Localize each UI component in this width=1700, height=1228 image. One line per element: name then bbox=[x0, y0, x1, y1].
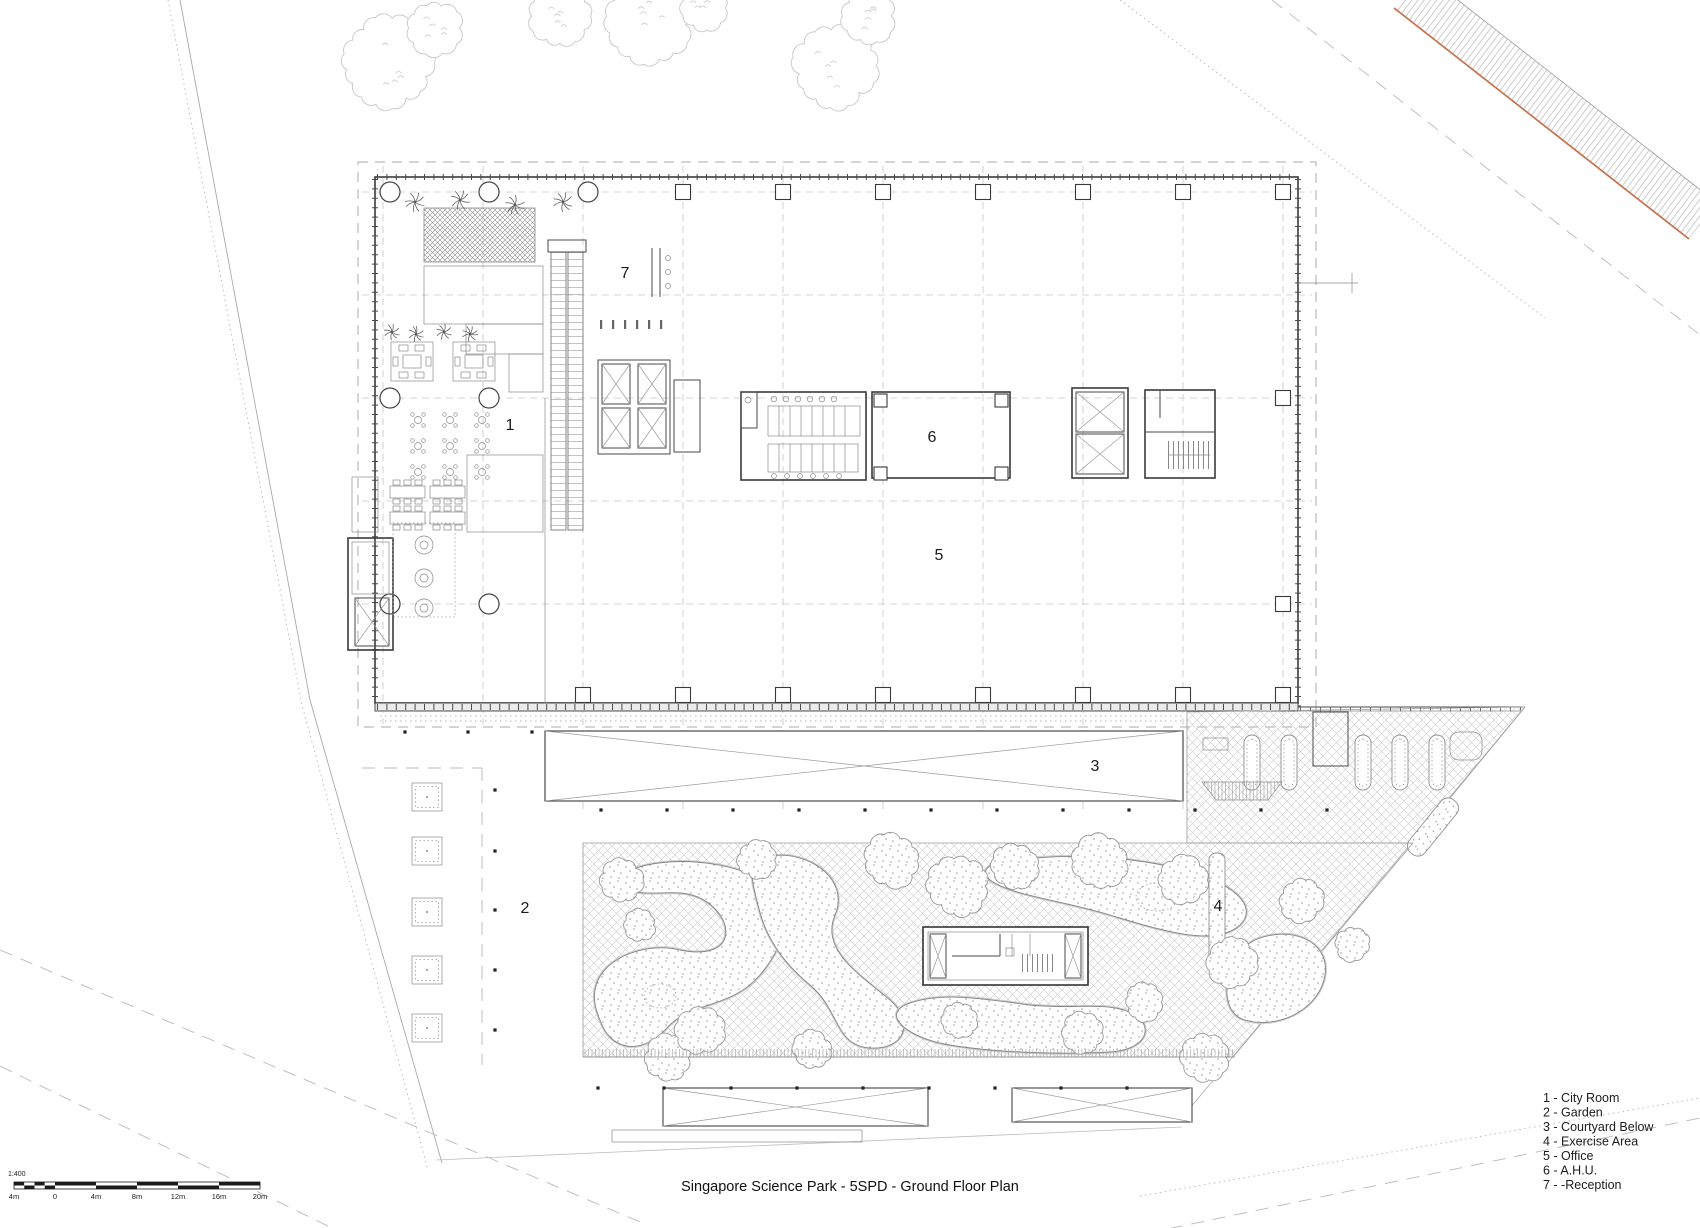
road-edge-accent-line bbox=[1394, 8, 1689, 239]
area-label-exercise-area: 4 bbox=[1214, 898, 1223, 915]
wash-basins bbox=[771, 396, 837, 402]
floor-plan-sheet: 1 2 3 4 5 6 7 1 - City Room 2 - Garden 3… bbox=[0, 0, 1700, 1228]
road-band bbox=[1394, 0, 1700, 239]
ahu-room bbox=[872, 392, 1010, 480]
scale-tick-labels: 4m 0 4m 8m 12m 16m 20m bbox=[9, 1192, 268, 1201]
round-planter-tables bbox=[415, 536, 433, 617]
core-east-lift-bank bbox=[1072, 388, 1128, 478]
legend-item-4: 4 - Exercise Area bbox=[1543, 1135, 1638, 1149]
svg-text:16m: 16m bbox=[212, 1192, 227, 1201]
area-label-office: 5 bbox=[935, 547, 944, 564]
scale-ratio: 1:400 bbox=[8, 1171, 26, 1178]
city-room bbox=[348, 191, 586, 703]
reception-area bbox=[600, 248, 671, 329]
courtyard-below bbox=[545, 731, 1183, 801]
scale-bar: 1:400 4m 0 4m 8m 12m 16m 20m bbox=[8, 1171, 267, 1201]
core-east-stair bbox=[1145, 390, 1215, 478]
floor-plan-canvas: 1 2 3 4 5 6 7 1 - City Room 2 - Garden 3… bbox=[0, 0, 1700, 1228]
area-label-garden: 2 bbox=[521, 900, 530, 917]
stair-west bbox=[352, 477, 378, 532]
west-approach bbox=[362, 768, 482, 1065]
core-stair bbox=[674, 380, 700, 452]
garden-pavilion bbox=[923, 927, 1088, 985]
south-promenade bbox=[612, 1088, 1192, 1142]
planter-bed-hatched bbox=[424, 208, 535, 262]
ramp-south bbox=[1202, 782, 1282, 800]
plan-area-labels: 1 2 3 4 5 6 7 bbox=[506, 265, 1223, 917]
structural-grid bbox=[362, 166, 1312, 810]
svg-text:12m: 12m bbox=[171, 1192, 186, 1201]
area-label-reception: 7 bbox=[621, 265, 630, 282]
area-label-courtyard-below: 3 bbox=[1091, 758, 1100, 775]
legend-item-1: 1 - City Room bbox=[1543, 1091, 1619, 1105]
drawing-title: Singapore Science Park - 5SPD - Ground F… bbox=[681, 1179, 1019, 1195]
garden-south-edge bbox=[583, 1049, 1235, 1057]
site-trees bbox=[341, 0, 895, 111]
toilet-block bbox=[741, 392, 866, 480]
canopy-a bbox=[663, 1088, 928, 1126]
legend-item-7: 7 - -Reception bbox=[1543, 1178, 1622, 1192]
svg-text:20m: 20m bbox=[253, 1192, 268, 1201]
turnstiles bbox=[600, 320, 662, 329]
legend-item-2: 2 - Garden bbox=[1543, 1106, 1603, 1120]
escalator-lane bbox=[568, 252, 583, 530]
west-planters bbox=[412, 783, 442, 1042]
garden-area bbox=[583, 832, 1413, 1082]
area-label-ahu: 6 bbox=[928, 429, 937, 446]
city-room-furniture bbox=[390, 342, 495, 530]
planting-bed-dotted bbox=[393, 523, 455, 617]
svg-text:0: 0 bbox=[53, 1192, 57, 1201]
svg-text:4m: 4m bbox=[9, 1192, 19, 1201]
legend-item-3: 3 - Courtyard Below bbox=[1543, 1120, 1654, 1134]
area-label-city-room: 1 bbox=[506, 417, 515, 434]
linear-bench bbox=[612, 1130, 862, 1142]
svg-text:8m: 8m bbox=[132, 1192, 142, 1201]
escalator-lane bbox=[551, 252, 566, 530]
svg-text:4m: 4m bbox=[91, 1192, 101, 1201]
building-south-wall bbox=[375, 703, 1298, 711]
legend: 1 - City Room 2 - Garden 3 - Courtyard B… bbox=[1543, 1091, 1654, 1192]
legend-item-5: 5 - Office bbox=[1543, 1149, 1594, 1163]
core-west-lift-bank bbox=[598, 360, 700, 454]
east-paving bbox=[1187, 707, 1525, 860]
wc-fixtures bbox=[772, 474, 842, 479]
legend-item-6: 6 - A.H.U. bbox=[1543, 1164, 1597, 1178]
canopy-b bbox=[1012, 1088, 1192, 1122]
